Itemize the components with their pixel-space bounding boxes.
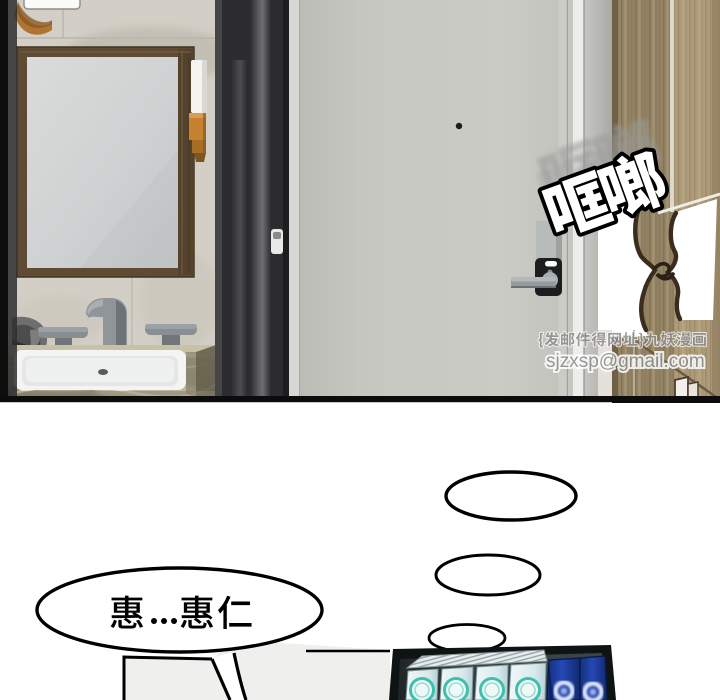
- svg-text:sjzxsp@gmail.com: sjzxsp@gmail.com: [546, 351, 705, 372]
